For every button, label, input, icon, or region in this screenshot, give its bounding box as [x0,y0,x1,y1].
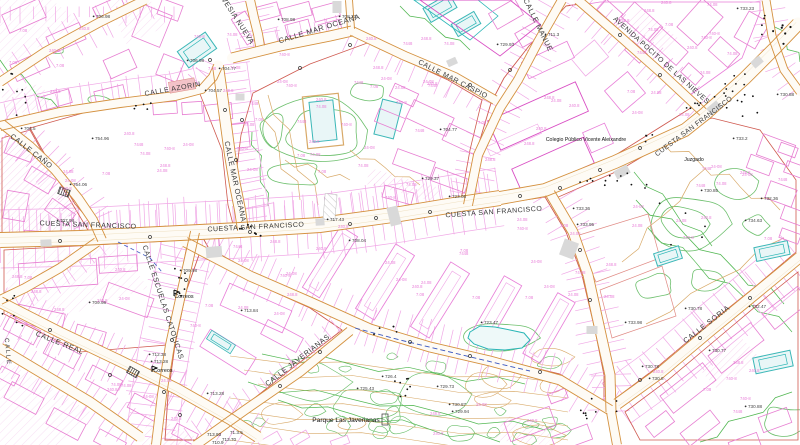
svg-text:729.94: 729.94 [455,409,469,414]
svg-text:7.08: 7.08 [370,84,379,89]
svg-text:733.98: 733.98 [628,320,642,325]
svg-text:730.88: 730.88 [780,92,794,97]
svg-text:7.08: 7.08 [416,292,425,297]
svg-text:240.8: 240.8 [661,0,672,5]
svg-text:7.08: 7.08 [318,169,327,174]
svg-text:248.8: 248.8 [430,411,441,416]
svg-text:740-8: 740-8 [279,52,290,57]
svg-text:7448: 7448 [415,128,425,133]
svg-text:24.08: 24.08 [604,294,615,299]
svg-text:708.98: 708.98 [281,17,295,22]
svg-text:706.5: 706.5 [24,126,36,131]
svg-text:248.8: 248.8 [31,289,42,294]
svg-text:729.37: 729.37 [425,176,439,181]
svg-text:240.8: 240.8 [124,131,135,136]
svg-text:740-8: 740-8 [237,146,248,151]
svg-text:7.08: 7.08 [208,66,217,71]
svg-text:240.8: 240.8 [433,431,444,436]
svg-text:Juzgado: Juzgado [684,157,704,163]
svg-text:733.23: 733.23 [740,6,754,11]
svg-text:74.08: 74.08 [227,32,238,37]
svg-text:7448: 7448 [249,101,259,106]
svg-text:7.08: 7.08 [205,303,214,308]
svg-text:240.8: 240.8 [97,298,108,303]
svg-text:24.08: 24.08 [570,231,581,236]
svg-text:24.08: 24.08 [421,280,432,285]
svg-text:713.93: 713.93 [207,432,221,437]
svg-text:24.08: 24.08 [385,260,396,265]
svg-text:7.08: 7.08 [102,171,111,176]
svg-text:754.96: 754.96 [95,136,109,141]
svg-text:240.8: 240.8 [171,416,182,421]
svg-text:24-08: 24-08 [247,167,258,172]
svg-text:74.08: 74.08 [406,182,417,187]
svg-text:248.8: 248.8 [54,307,65,312]
svg-text:248.8: 248.8 [644,8,655,13]
svg-text:74.08: 74.08 [444,41,455,46]
svg-text:740-8: 740-8 [280,273,291,278]
svg-text:740-8: 740-8 [517,226,528,231]
svg-text:240.8: 240.8 [569,103,580,108]
svg-text:7448: 7448 [233,244,243,249]
svg-text:248.8: 248.8 [733,360,744,365]
svg-text:24.08: 24.08 [161,378,172,383]
svg-text:729.93: 729.93 [500,42,514,47]
svg-text:24.08: 24.08 [676,218,687,223]
svg-text:24-08: 24-08 [143,394,154,399]
svg-text:730.88: 730.88 [748,404,762,409]
svg-text:740-8: 740-8 [385,195,396,200]
svg-text:7.08: 7.08 [255,117,264,122]
svg-text:74.08: 74.08 [316,104,327,109]
svg-text:240.8: 240.8 [749,368,760,373]
svg-text:24-08: 24-08 [476,402,487,407]
svg-text:24-08: 24-08 [396,277,407,282]
svg-text:7448: 7448 [134,142,144,147]
svg-text:24-08: 24-08 [381,76,392,81]
svg-text:740-8: 740-8 [341,122,352,127]
svg-text:240.8: 240.8 [316,97,327,102]
svg-text:24.08: 24.08 [238,305,249,310]
svg-text:240.8: 240.8 [366,36,377,41]
svg-text:740-8: 740-8 [726,376,737,381]
svg-text:723.08: 723.08 [452,194,466,199]
svg-text:706.98: 706.98 [190,58,204,63]
svg-text:74.08: 74.08 [575,270,586,275]
svg-text:713.28: 713.28 [154,359,168,364]
svg-text:729.73: 729.73 [440,384,454,389]
svg-text:248.8: 248.8 [606,262,617,267]
svg-text:Colegio Público Vicente Aleixa: Colegio Público Vicente Aleixandre [546,137,626,143]
svg-text:740-8: 740-8 [164,146,175,151]
svg-text:74.08: 74.08 [358,163,369,168]
svg-text:7.08: 7.08 [665,22,674,27]
svg-text:240.8: 240.8 [316,246,327,251]
svg-text:24-08: 24-08 [119,296,130,301]
svg-text:248.8: 248.8 [485,157,496,162]
svg-text:713.28: 713.28 [210,391,224,396]
svg-text:24-08: 24-08 [364,145,375,150]
svg-text:7.08: 7.08 [297,153,306,158]
svg-text:740-8: 740-8 [194,34,205,39]
svg-text:710.9: 710.9 [212,440,224,445]
svg-text:740-8: 740-8 [190,323,201,328]
svg-text:240.8: 240.8 [107,387,118,392]
svg-text:Correos: Correos [174,294,193,300]
svg-text:240.8: 240.8 [338,224,349,229]
svg-text:725.43: 725.43 [360,386,374,391]
svg-text:7.08: 7.08 [9,60,18,65]
svg-text:248.8: 248.8 [270,239,281,244]
svg-text:24-08: 24-08 [238,258,249,263]
svg-text:740-8: 740-8 [396,100,407,105]
svg-text:74.08: 74.08 [140,151,151,156]
svg-text:24.08: 24.08 [63,169,74,174]
svg-text:7.08: 7.08 [525,295,534,300]
svg-text:240.8: 240.8 [653,369,664,374]
svg-text:240.8: 240.8 [49,48,60,53]
svg-text:240.8: 240.8 [50,89,61,94]
svg-text:74.08: 74.08 [707,2,718,7]
svg-text:726.4: 726.4 [385,374,397,379]
svg-text:7448: 7448 [696,183,706,188]
svg-text:74.08: 74.08 [244,122,255,127]
svg-text:248.8: 248.8 [524,141,535,146]
svg-text:240.8: 240.8 [79,26,90,31]
svg-text:709.98: 709.98 [183,268,197,273]
svg-text:7.08: 7.08 [19,28,28,33]
svg-text:732.47: 732.47 [752,304,766,309]
svg-text:730.78: 730.78 [688,306,702,311]
svg-text:248.8: 248.8 [309,139,320,144]
svg-text:704.57: 704.57 [208,88,222,93]
svg-text:717.43: 717.43 [330,217,344,222]
svg-text:707.98: 707.98 [60,218,74,223]
svg-text:730.8: 730.8 [652,376,664,381]
svg-text:248.8: 248.8 [287,292,298,297]
svg-text:7448: 7448 [297,119,307,124]
svg-text:7448: 7448 [733,409,743,414]
svg-text:240.8: 240.8 [412,284,423,289]
svg-text:730.87: 730.87 [452,402,466,407]
svg-text:7.08: 7.08 [460,248,469,253]
svg-text:74.08: 74.08 [111,382,122,387]
svg-text:7.08: 7.08 [560,223,569,228]
svg-text:708.04: 708.04 [352,238,366,243]
svg-text:740-8: 740-8 [701,35,712,40]
svg-text:732.36: 732.36 [764,196,778,201]
svg-text:24-08: 24-08 [711,164,722,169]
svg-text:240.8: 240.8 [536,126,547,131]
svg-text:248.8: 248.8 [740,170,751,175]
svg-text:7448: 7448 [354,80,364,85]
svg-text:7448: 7448 [403,41,413,46]
svg-text:248.8: 248.8 [160,163,171,168]
svg-text:712.38: 712.38 [152,352,166,357]
svg-text:24.08: 24.08 [632,223,643,228]
svg-text:24-08: 24-08 [274,311,285,316]
svg-text:24.08: 24.08 [568,292,579,297]
svg-text:Correos: Correos [153,368,172,374]
svg-text:740-8: 740-8 [740,396,751,401]
svg-text:733.95: 733.95 [580,222,594,227]
svg-text:713.70: 713.70 [222,437,236,442]
svg-text:24-08: 24-08 [632,110,643,115]
svg-text:240.8: 240.8 [527,418,538,423]
svg-text:7.08: 7.08 [764,236,773,241]
svg-text:723.47: 723.47 [484,320,498,325]
svg-text:71.3.5: 71.3.5 [230,430,243,435]
svg-text:74.08: 74.08 [310,152,321,157]
svg-text:740-8: 740-8 [683,235,694,240]
svg-text:74.08: 74.08 [727,51,738,56]
svg-text:706.98: 706.98 [96,14,110,19]
svg-text:24-08: 24-08 [633,204,644,209]
svg-text:74.08: 74.08 [648,27,659,32]
svg-text:24-08: 24-08 [183,142,194,147]
svg-text:24-08: 24-08 [531,259,542,264]
svg-text:24.08: 24.08 [157,168,168,173]
svg-text:7448: 7448 [428,83,438,88]
svg-text:24.08: 24.08 [700,70,711,75]
svg-text:711.3: 711.3 [548,32,560,37]
svg-text:24-08: 24-08 [65,178,76,183]
svg-text:74.08: 74.08 [716,181,727,186]
svg-text:248.8: 248.8 [544,95,555,100]
svg-text:7.08: 7.08 [478,120,487,125]
svg-text:7.08: 7.08 [56,63,65,68]
svg-text:7448: 7448 [778,177,788,182]
svg-text:24-08: 24-08 [544,284,555,289]
svg-text:74.08: 74.08 [121,383,132,388]
svg-text:740-8: 740-8 [61,186,72,191]
svg-text:704.77: 704.77 [443,127,457,132]
svg-text:7.08: 7.08 [703,387,712,392]
svg-text:248.8: 248.8 [223,88,234,93]
svg-text:734.63: 734.63 [748,218,762,223]
svg-text:740-8: 740-8 [286,83,297,88]
svg-text:730.77: 730.77 [712,348,726,353]
svg-text:74.08: 74.08 [230,65,241,70]
svg-text:7.08: 7.08 [472,295,481,300]
svg-text:733.2: 733.2 [736,136,748,141]
svg-text:240.8: 240.8 [687,45,698,50]
svg-text:733.36: 733.36 [576,206,590,211]
svg-text:24.08: 24.08 [679,112,690,117]
svg-text:730.85: 730.85 [704,188,718,193]
svg-text:Parque Las Javerianas: Parque Las Javerianas [312,417,380,424]
svg-text:248.8: 248.8 [373,65,384,70]
svg-text:7.08: 7.08 [627,89,636,94]
svg-text:24.08: 24.08 [517,217,528,222]
svg-text:24.08: 24.08 [651,90,662,95]
svg-text:7.08: 7.08 [24,275,33,280]
svg-text:248.8: 248.8 [619,18,630,23]
svg-text:248.8: 248.8 [421,36,432,41]
svg-text:240.8: 240.8 [115,267,126,272]
svg-text:24.08: 24.08 [395,85,406,90]
svg-text:7448: 7448 [637,50,647,55]
svg-text:248.8: 248.8 [12,274,23,279]
svg-text:708.23: 708.23 [342,14,356,19]
svg-text:240.8: 240.8 [701,215,712,220]
